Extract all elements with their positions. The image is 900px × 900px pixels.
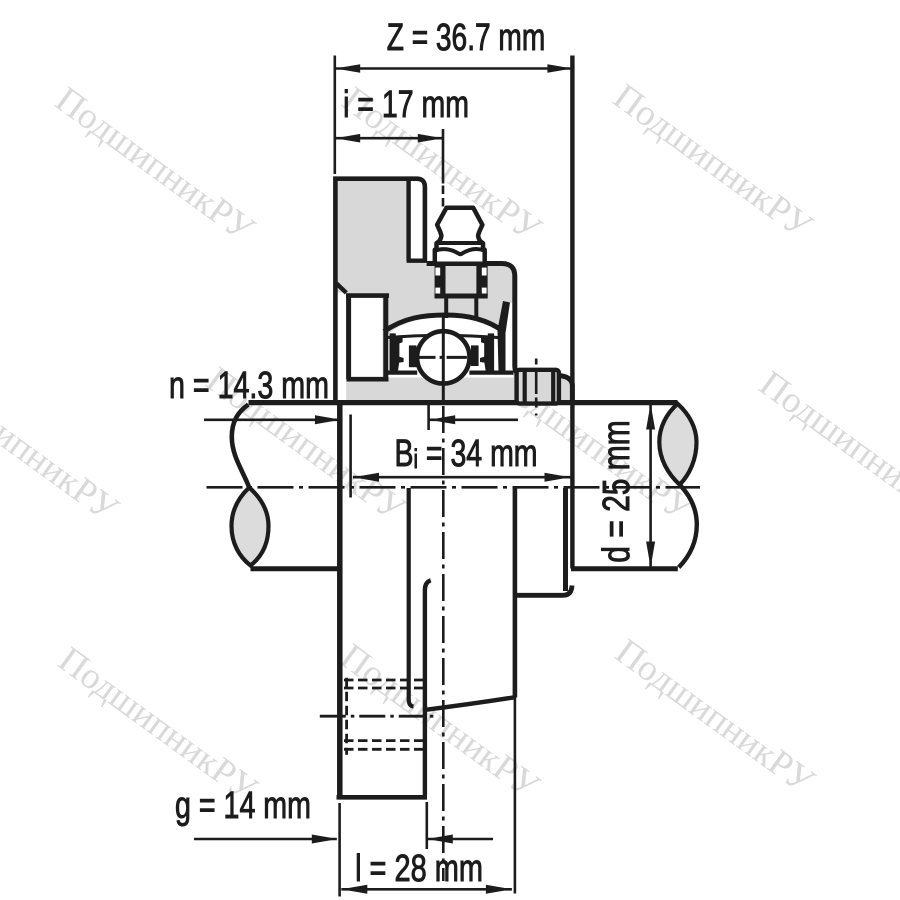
svg-text:l = 28 mm: l = 28 mm <box>355 847 483 890</box>
svg-text:n = 14.3 mm: n = 14.3 mm <box>169 365 329 407</box>
svg-text:i = 17 mm: i = 17 mm <box>343 84 469 126</box>
svg-text:Z = 36.7 mm: Z = 36.7 mm <box>387 17 546 59</box>
svg-text:g = 14 mm: g = 14 mm <box>175 785 311 827</box>
svg-text:d = 25 mm: d = 25 mm <box>596 420 638 563</box>
